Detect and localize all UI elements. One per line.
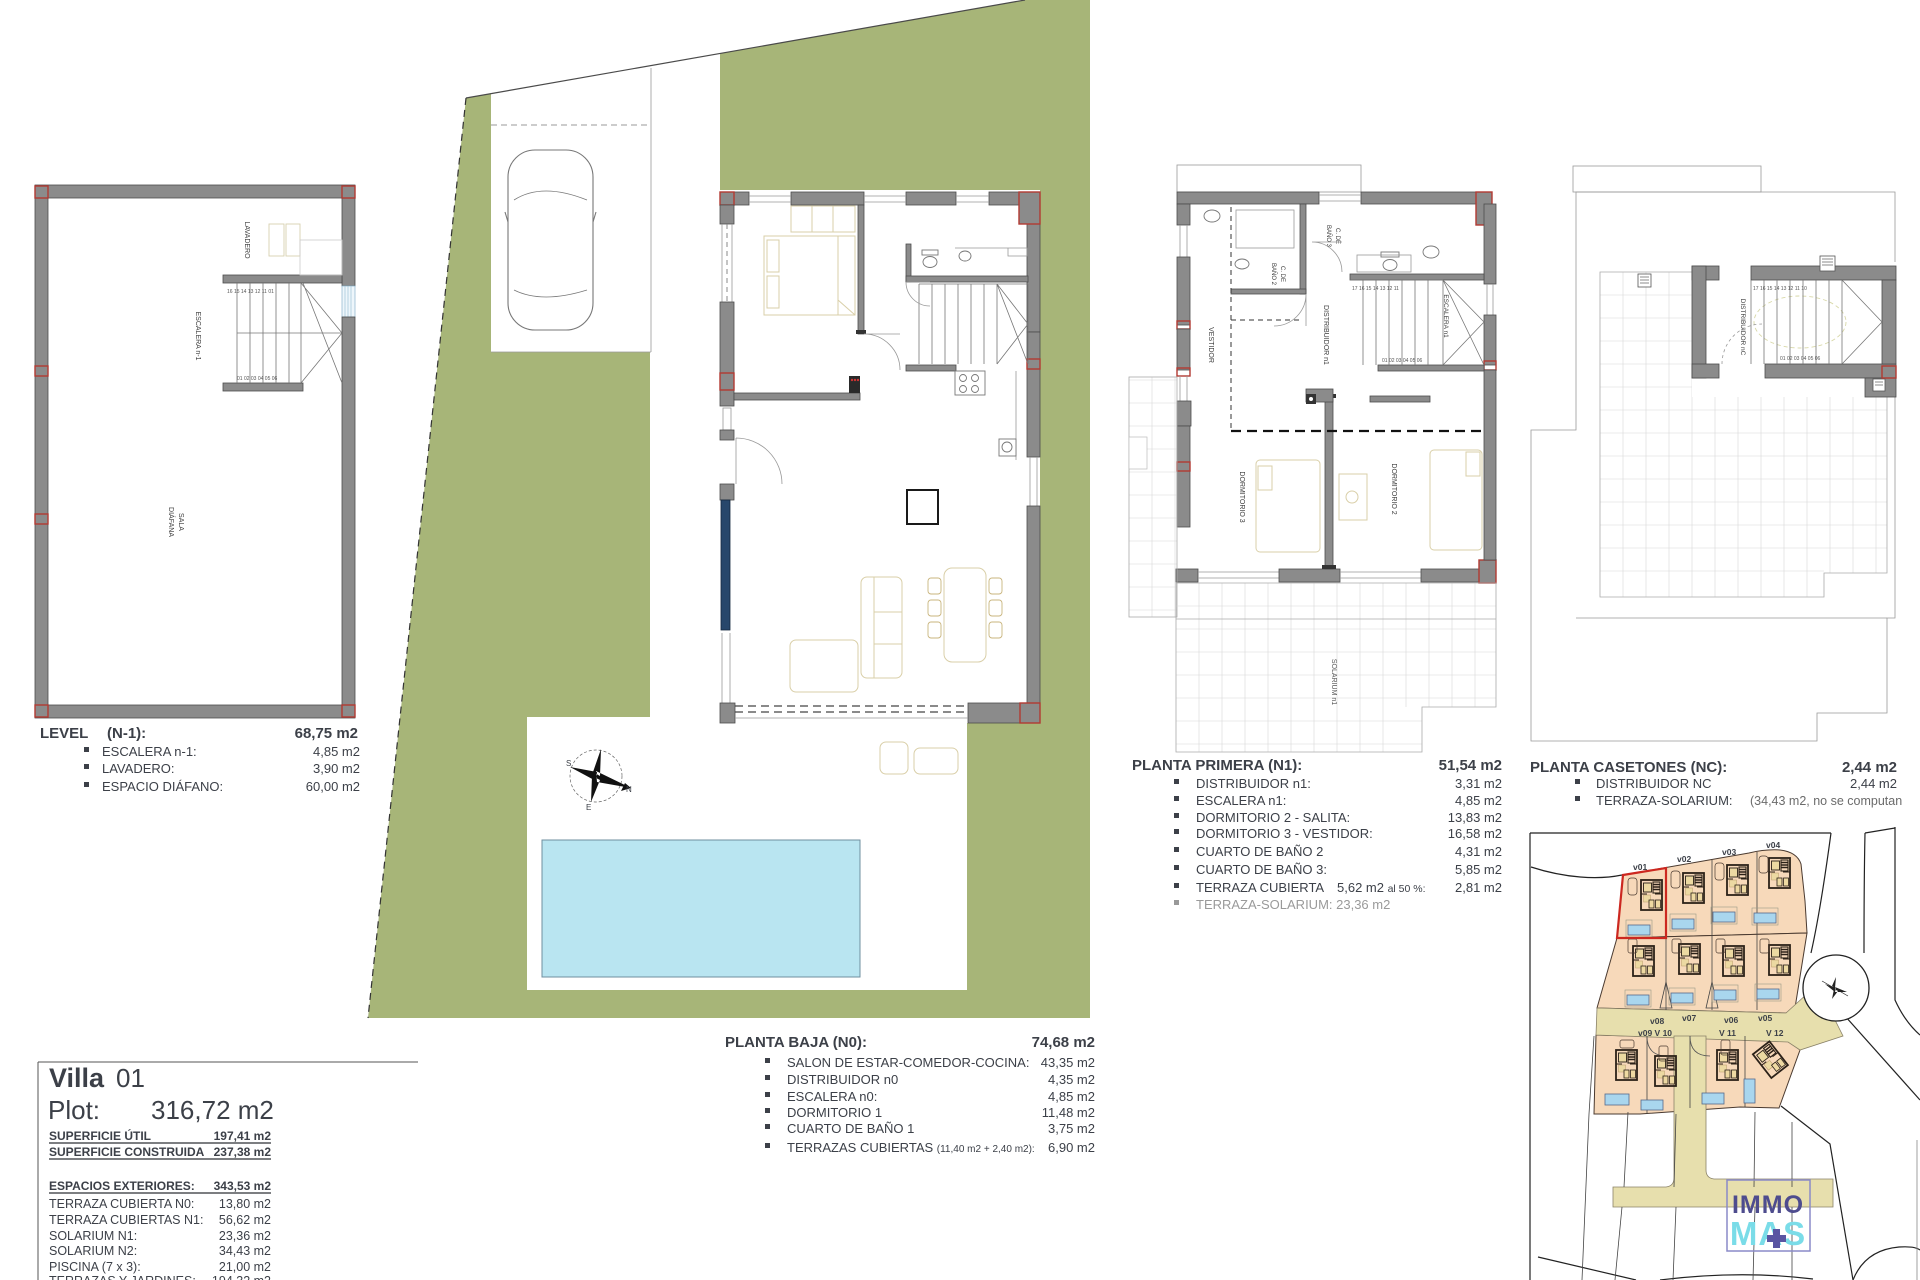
- svg-text:01: 01: [116, 1063, 145, 1093]
- svg-text:v08: v08: [1650, 1016, 1664, 1026]
- svg-text:316,72 m2: 316,72 m2: [151, 1095, 274, 1125]
- svg-text:TERRAZAS CUBIERTAS (11,40 m2 +: TERRAZAS CUBIERTAS (11,40 m2 + 2,40 m2):: [787, 1140, 1035, 1155]
- svg-text:ESCALERA n-1:: ESCALERA n-1:: [102, 744, 197, 759]
- svg-text:DORMITORIO 3 - VESTIDOR:: DORMITORIO 3 - VESTIDOR:: [1196, 826, 1373, 841]
- svg-text:56,62 m2: 56,62 m2: [219, 1213, 271, 1227]
- svg-text:01 02 03 04 05 06: 01 02 03 04 05 06: [1780, 356, 1821, 362]
- svg-text:v02: v02: [1677, 854, 1691, 864]
- svg-text:v06: v06: [1724, 1015, 1738, 1025]
- svg-text:SOLARIUM N2:: SOLARIUM N2:: [49, 1244, 137, 1258]
- svg-text:Villa: Villa: [49, 1063, 105, 1093]
- svg-text:BAÑO 2: BAÑO 2: [1270, 263, 1277, 286]
- svg-text:194,32 m2: 194,32 m2: [212, 1274, 271, 1280]
- svg-text:SOLARIUM N1:: SOLARIUM N1:: [49, 1229, 137, 1243]
- svg-text:PLANTA CASETONES (NC):: PLANTA CASETONES (NC):: [1530, 759, 1727, 776]
- svg-text:3,90 m2: 3,90 m2: [313, 761, 360, 776]
- svg-text:4,31 m2: 4,31 m2: [1455, 844, 1502, 859]
- svg-text:DISTRIBUIDOR n1: DISTRIBUIDOR n1: [1322, 305, 1329, 365]
- svg-text:(34,43 m2, no se computan: (34,43 m2, no se computan: [1750, 794, 1902, 808]
- svg-text:S: S: [566, 759, 571, 768]
- svg-text:4,35 m2: 4,35 m2: [1048, 1072, 1095, 1087]
- svg-text:CUARTO DE BAÑO 1: CUARTO DE BAÑO 1: [787, 1121, 914, 1136]
- svg-text:5,62 m2 al 50 %:: 5,62 m2 al 50 %:: [1337, 880, 1426, 895]
- svg-text:3,31 m2: 3,31 m2: [1455, 776, 1502, 791]
- svg-text:SUPERFICIE CONSTRUIDA: SUPERFICIE CONSTRUIDA: [49, 1145, 205, 1159]
- svg-text:PLANTA BAJA (N0):: PLANTA BAJA (N0):: [725, 1034, 867, 1051]
- svg-text:DORMITORIO 3: DORMITORIO 3: [1238, 471, 1245, 522]
- svg-text:MAS: MAS: [1730, 1215, 1806, 1252]
- svg-text:DORMITORIO 1: DORMITORIO 1: [787, 1105, 882, 1120]
- svg-text:11,48 m2: 11,48 m2: [1042, 1105, 1095, 1120]
- svg-text:17 16 15 14 13 12 11: 17 16 15 14 13 12 11: [1352, 286, 1399, 292]
- svg-text:TERRAZA-SOLARIUM: 23,36 m2: TERRAZA-SOLARIUM: 23,36 m2: [1196, 897, 1390, 912]
- svg-text:6,90 m2: 6,90 m2: [1048, 1140, 1095, 1155]
- svg-text:DISTRIBUIDOR n1:: DISTRIBUIDOR n1:: [1196, 776, 1311, 791]
- svg-text:21,00 m2: 21,00 m2: [219, 1260, 271, 1274]
- svg-text:ESCALERA n1:: ESCALERA n1:: [1196, 793, 1286, 808]
- svg-text:CUARTO DE BAÑO 3:: CUARTO DE BAÑO 3:: [1196, 862, 1327, 877]
- svg-text:N: N: [626, 785, 632, 794]
- svg-text:237,38 m2: 237,38 m2: [214, 1145, 272, 1159]
- svg-text:74,68 m2: 74,68 m2: [1032, 1034, 1095, 1051]
- svg-text:01 02 03 04 05 06: 01 02 03 04 05 06: [1382, 358, 1423, 364]
- svg-text:(N-1):: (N-1):: [107, 725, 146, 742]
- svg-text:68,75 m2: 68,75 m2: [295, 725, 358, 742]
- svg-text:17 16 15 14 13 12 11 10: 17 16 15 14 13 12 11 10: [1753, 286, 1807, 292]
- svg-text:LAVADERO:: LAVADERO:: [102, 761, 174, 776]
- svg-text:23,36 m2: 23,36 m2: [219, 1229, 271, 1243]
- svg-text:TERRAZA CUBIERTAS N1:: TERRAZA CUBIERTAS N1:: [49, 1213, 203, 1227]
- svg-text:v05: v05: [1758, 1013, 1772, 1023]
- svg-text:197,41 m2: 197,41 m2: [214, 1129, 272, 1143]
- svg-text:DISTRIBUIDOR n0: DISTRIBUIDOR n0: [787, 1072, 898, 1087]
- svg-text:v03: v03: [1722, 847, 1736, 857]
- svg-text:E: E: [586, 803, 591, 812]
- svg-text:LAVADERO: LAVADERO: [243, 221, 250, 259]
- svg-text:DORMITORIO 2: DORMITORIO 2: [1390, 463, 1397, 514]
- svg-text:34,43 m2: 34,43 m2: [219, 1244, 271, 1258]
- svg-text:SOLARIUM n1: SOLARIUM n1: [1330, 659, 1337, 705]
- svg-text:SALA: SALA: [177, 513, 184, 531]
- svg-text:16,58 m2: 16,58 m2: [1448, 826, 1502, 841]
- svg-text:60,00 m2: 60,00 m2: [306, 779, 360, 794]
- svg-text:V 11: V 11: [1719, 1028, 1736, 1038]
- svg-text:01 02 03 04 05 06: 01 02 03 04 05 06: [237, 376, 278, 382]
- svg-text:VESTIDOR: VESTIDOR: [1207, 327, 1214, 363]
- svg-text:ESCALERA n-1: ESCALERA n-1: [194, 311, 201, 360]
- svg-text:TERRAZA CUBIERTA N0:: TERRAZA CUBIERTA N0:: [49, 1197, 194, 1211]
- svg-text:SALON DE ESTAR-COMEDOR-COCINA:: SALON DE ESTAR-COMEDOR-COCINA:: [787, 1055, 1029, 1070]
- svg-text:51,54 m2: 51,54 m2: [1439, 757, 1502, 774]
- svg-text:2,44 m2: 2,44 m2: [1842, 759, 1897, 776]
- svg-text:DISTRIBUIDOR nC: DISTRIBUIDOR nC: [1739, 299, 1746, 356]
- svg-text:ESPACIO DIÁFANO:: ESPACIO DIÁFANO:: [102, 779, 223, 794]
- svg-text:BAÑO 3: BAÑO 3: [1325, 225, 1332, 248]
- svg-text:3,75 m2: 3,75 m2: [1048, 1121, 1095, 1136]
- svg-text:TERRAZA-SOLARIUM:: TERRAZA-SOLARIUM:: [1596, 793, 1733, 808]
- svg-text:DIÁFANA: DIÁFANA: [167, 507, 176, 537]
- svg-text:V 12: V 12: [1766, 1028, 1784, 1038]
- svg-text:v04: v04: [1766, 840, 1780, 850]
- svg-text:4,85 m2: 4,85 m2: [1048, 1089, 1095, 1104]
- svg-text:CUARTO DE BAÑO 2: CUARTO DE BAÑO 2: [1196, 844, 1323, 859]
- svg-text:5,85 m2: 5,85 m2: [1455, 862, 1502, 877]
- svg-text:2,81 m2: 2,81 m2: [1455, 880, 1502, 895]
- svg-text:DORMITORIO 2 - SALITA:: DORMITORIO 2 - SALITA:: [1196, 810, 1350, 825]
- svg-text:43,35 m2: 43,35 m2: [1041, 1055, 1095, 1070]
- svg-text:SUPERFICIE ÚTIL: SUPERFICIE ÚTIL: [49, 1128, 151, 1143]
- svg-text:Plot:: Plot:: [48, 1095, 100, 1125]
- svg-text:ESCALERA n1: ESCALERA n1: [1442, 294, 1449, 338]
- svg-text:13,80 m2: 13,80 m2: [219, 1197, 271, 1211]
- svg-text:v07: v07: [1682, 1013, 1696, 1023]
- svg-text:v01: v01: [1633, 862, 1647, 872]
- svg-text:TERRAZA CUBIERTA: TERRAZA CUBIERTA: [1196, 880, 1324, 895]
- svg-text:16 15 14 13 12 11 01: 16 15 14 13 12 11 01: [227, 289, 274, 295]
- svg-text:v09 V 10: v09 V 10: [1638, 1028, 1672, 1038]
- svg-text:C. DE: C. DE: [1279, 266, 1285, 282]
- svg-text:PLANTA PRIMERA (N1):: PLANTA PRIMERA (N1):: [1132, 757, 1302, 774]
- svg-text:ESCALERA n0:: ESCALERA n0:: [787, 1089, 877, 1104]
- svg-text:13,83 m2: 13,83 m2: [1448, 810, 1502, 825]
- svg-text:LEVEL: LEVEL: [40, 725, 88, 742]
- svg-text:2,44 m2: 2,44 m2: [1850, 776, 1897, 791]
- svg-text:DISTRIBUIDOR NC: DISTRIBUIDOR NC: [1596, 776, 1712, 791]
- svg-text:343,53 m2: 343,53 m2: [214, 1179, 272, 1193]
- svg-text:ESPACIOS EXTERIORES:: ESPACIOS EXTERIORES:: [49, 1179, 195, 1193]
- svg-text:4,85 m2: 4,85 m2: [1455, 793, 1502, 808]
- svg-text:4,85 m2: 4,85 m2: [313, 744, 360, 759]
- svg-text:TERRAZAS Y JARDINES:: TERRAZAS Y JARDINES:: [49, 1274, 196, 1280]
- svg-text:PISCINA (7 x 3):: PISCINA (7 x 3):: [49, 1260, 141, 1274]
